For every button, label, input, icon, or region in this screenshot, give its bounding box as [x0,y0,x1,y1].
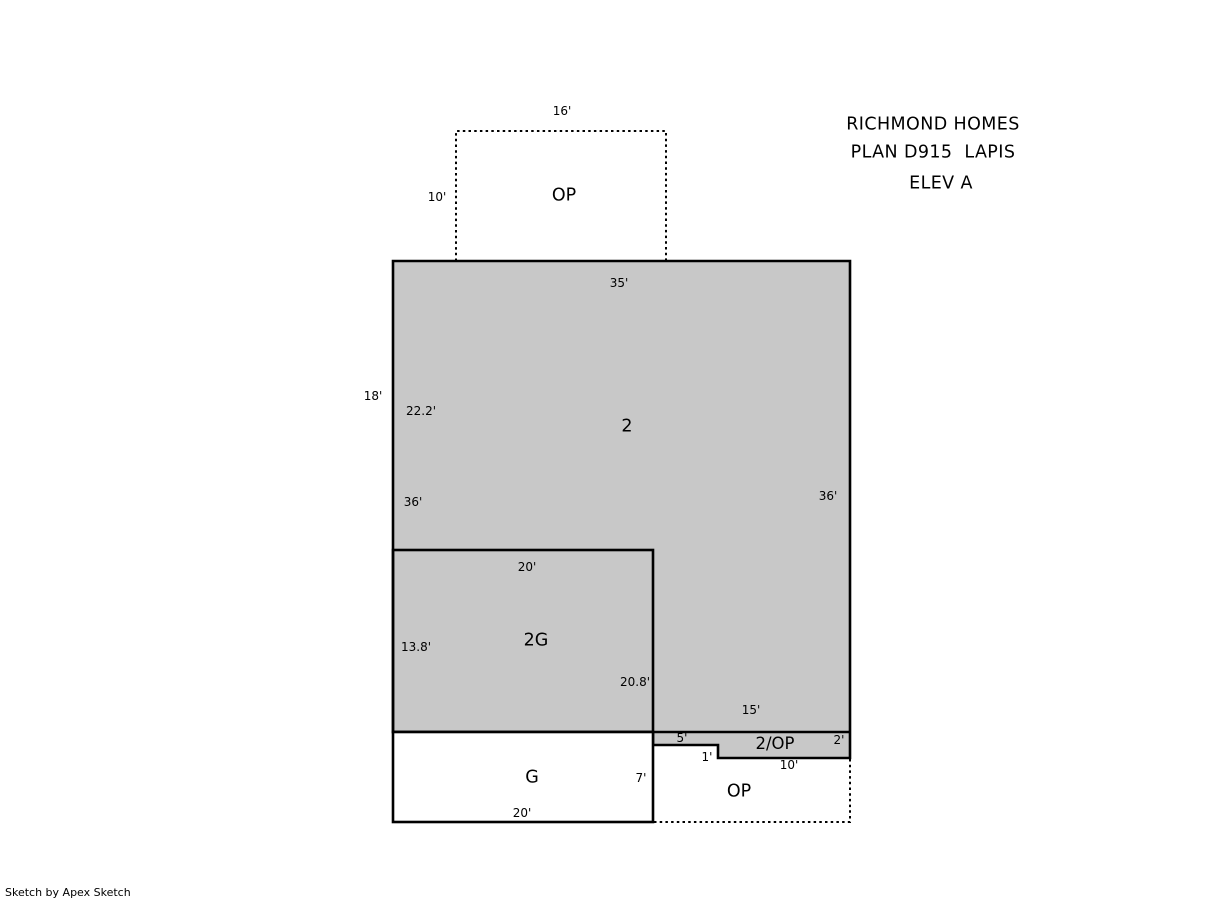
sketch-canvas: RICHMOND HOMES PLAN D915 LAPIS ELEV A OP… [0,0,1228,901]
dim-op-top-width: 16' [553,105,572,117]
area-label-second-garage: 2G [524,632,549,650]
dim-second-floor-left-upper: 22.2' [406,405,436,417]
dim-strip-notch: 1' [702,751,713,763]
sketch-credit: Sketch by Apex Sketch [5,886,131,899]
area-label-garage: G [525,769,539,787]
area-label-op-bottom: OP [727,783,751,801]
dim-second-floor-right: 36' [819,490,838,502]
dim-strip-top: 15' [742,704,761,716]
dim-op-top-height: 10' [428,191,447,203]
dim-second-floor-left-total: 36' [404,496,423,508]
area-label-second-floor: 2 [621,418,632,436]
dim-strip-right: 2' [834,734,845,746]
op-bottom-outline [653,759,850,822]
area-label-2op-strip: 2/OP [756,736,795,753]
dim-second-floor-top: 35' [610,277,629,289]
area-label-op-top: OP [552,187,576,205]
floorplan-drawing [0,0,1228,901]
plan-title-line3: ELEV A [909,175,973,193]
dim-second-floor-left-outer: 18' [364,390,383,402]
dim-second-garage-left: 13.8' [401,641,431,653]
plan-title-line1: RICHMOND HOMES [846,116,1020,134]
dim-second-garage-top: 20' [518,561,537,573]
plan-title-line2: PLAN D915 LAPIS [851,144,1016,162]
dim-garage-bottom: 20' [513,807,532,819]
dim-strip-bottom: 10' [780,759,799,771]
dim-second-garage-right: 20.8' [620,676,650,688]
dim-garage-right: 7' [636,772,647,784]
dim-strip-seg-left: 5' [677,732,688,744]
